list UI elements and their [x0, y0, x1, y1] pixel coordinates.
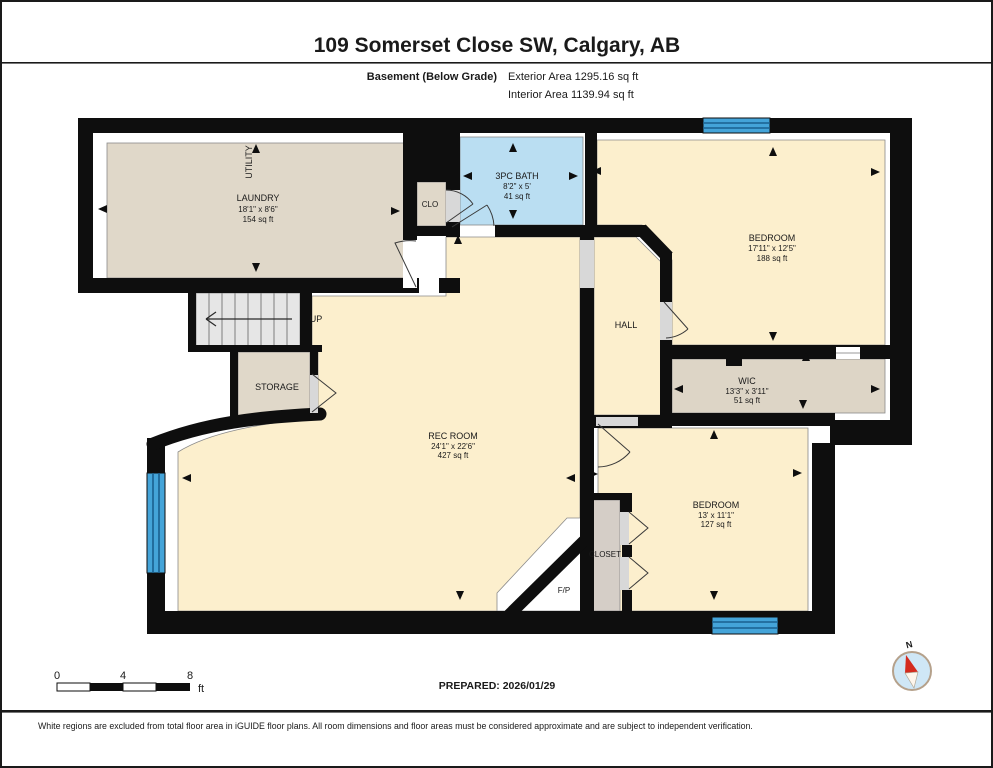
- bath-dims: 8'2" x 5': [503, 182, 531, 191]
- up-label: UP: [310, 314, 323, 324]
- bedroom1-area: 188 sq ft: [757, 254, 788, 263]
- room-bath: [460, 137, 583, 225]
- utility-name: UTILITY: [244, 145, 254, 179]
- page-title: 109 Somerset Close SW, Calgary, AB: [314, 34, 680, 57]
- exterior-area: Exterior Area 1295.16 sq ft: [508, 71, 638, 83]
- window-top: [703, 118, 770, 133]
- wic-name: WIC: [738, 376, 756, 386]
- bath-name: 3PC BATH: [495, 171, 538, 181]
- bedroom1-name: BEDROOM: [749, 233, 796, 243]
- rec-dims: 24'1" x 22'6": [431, 442, 475, 451]
- scale-tick-4: 4: [120, 670, 126, 682]
- wic-dims: 13'3" x 3'11": [725, 387, 768, 396]
- scale-unit: ft: [198, 683, 204, 695]
- closet-name: CLOSET: [589, 550, 621, 559]
- laundry-area: 154 sq ft: [243, 215, 274, 224]
- footer-divider: [2, 710, 991, 713]
- scale-tick-0: 0: [54, 670, 60, 682]
- stairs: [196, 293, 300, 347]
- prepared-date: PREPARED: 2026/01/29: [439, 680, 556, 692]
- bedroom2-area: 127 sq ft: [701, 520, 732, 529]
- room-wic: [672, 359, 885, 413]
- bedroom2-name: BEDROOM: [693, 500, 740, 510]
- floorplan-canvas: 109 Somerset Close SW, Calgary, AB Basem…: [2, 2, 991, 766]
- laundry-name: LAUNDRY: [237, 193, 280, 203]
- window-bottom: [712, 617, 778, 634]
- footer: 0 4 8 ft PREPARED: 2026/01/29 N White re…: [2, 639, 991, 731]
- compass: N: [893, 639, 931, 690]
- header: 109 Somerset Close SW, Calgary, AB Basem…: [2, 34, 991, 101]
- rec-area: 427 sq ft: [438, 451, 469, 460]
- bath-area: 41 sq ft: [504, 192, 531, 201]
- window-left: [147, 473, 165, 573]
- scale-tick-8: 8: [187, 670, 193, 682]
- title-divider: [2, 62, 991, 64]
- floor-label: Basement (Below Grade): [367, 71, 498, 83]
- disclaimer-text: White regions are excluded from total fl…: [38, 721, 753, 731]
- storage-name: STORAGE: [255, 382, 299, 392]
- bedroom1-dims: 17'11" x 12'5": [748, 244, 796, 253]
- room-fills: [107, 137, 885, 611]
- compass-north-label: N: [905, 639, 914, 650]
- bedroom2-dims: 13' x 11'1": [698, 511, 734, 520]
- clo-name: CLO: [422, 200, 438, 209]
- interior-area: Interior Area 1139.94 sq ft: [508, 89, 634, 101]
- scale-bar: 0 4 8 ft: [54, 670, 204, 695]
- hall-name: HALL: [615, 320, 638, 330]
- laundry-dims: 18'1" x 8'6": [238, 205, 278, 214]
- floorplan-page: 109 Somerset Close SW, Calgary, AB Basem…: [0, 0, 993, 768]
- fp-label: F/P: [558, 586, 570, 595]
- rec-name: REC ROOM: [428, 431, 478, 441]
- wic-area: 51 sq ft: [734, 396, 761, 405]
